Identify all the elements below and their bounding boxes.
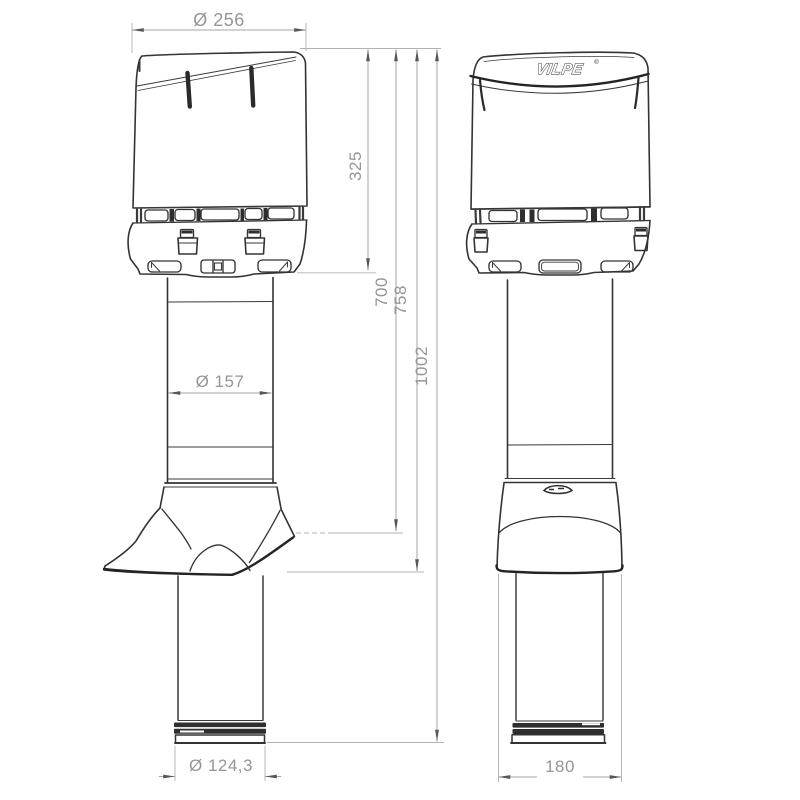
flashing-arch [499, 517, 621, 534]
slot-divider [170, 209, 175, 222]
upper-pipe-front [508, 279, 613, 478]
opening-mark [152, 263, 160, 272]
opening-inner-line [542, 262, 579, 271]
vent-slot [538, 209, 587, 221]
clip-body [178, 238, 198, 254]
vent-slot-band-front [471, 207, 650, 225]
dim-cap-diameter: Ø 256 [132, 10, 306, 53]
roof-flashing-front [497, 479, 623, 574]
slot-divider [530, 210, 535, 223]
cap-lid-front-edge-inner [138, 61, 296, 91]
front-view: VILPE ® [467, 52, 650, 743]
opening-mark [493, 263, 501, 272]
gasket-ring [174, 723, 266, 728]
slot-divider [197, 209, 201, 222]
flashing-brand-mark [544, 486, 572, 494]
lower-pipe-front [511, 573, 606, 743]
slot-divider [241, 209, 245, 221]
pipe-seam-1 [168, 302, 274, 303]
gasket-ring-step [180, 731, 204, 733]
vent-slot-band [133, 206, 307, 223]
flashing-side-right [616, 483, 622, 569]
base-opening-right [258, 260, 291, 272]
slot-divider [520, 210, 525, 223]
flashing-side-left [497, 483, 504, 569]
opening-mark [622, 263, 630, 272]
roof-flashing [104, 483, 295, 575]
opening-mark [280, 262, 288, 271]
dim-height-to-roofline: 700 [296, 50, 403, 534]
cap-crease-left [480, 80, 485, 110]
roof-vent-dimension-drawing: VILPE ® [0, 0, 800, 800]
flashing-center-dome [190, 545, 250, 571]
vent-slot [145, 210, 168, 221]
vent-slot [175, 210, 195, 221]
slot-band-edge-hatch-left [476, 210, 481, 223]
technical-drawing-page: VILPE ® [0, 0, 800, 800]
collar-side-left [160, 487, 164, 508]
dim-700-label: 700 [372, 277, 391, 307]
dim-pipe-diameter: Ø 157 [169, 372, 272, 393]
pipe-seam [508, 445, 613, 446]
cap-crease-right [635, 78, 639, 108]
side-view [104, 52, 307, 743]
vent-base [128, 221, 306, 277]
cap-lid-front-edge [137, 57, 296, 86]
base-opening-left [489, 261, 521, 272]
slot-divider [591, 209, 597, 222]
clip-latch-bar [249, 231, 260, 234]
base-clip-left [474, 230, 488, 253]
cap-lid-slot-right [251, 68, 253, 106]
vent-slot [245, 209, 262, 220]
dim-bottom-pipe-diameter: Ø 124,3 [159, 746, 281, 781]
slot-divider [264, 208, 268, 220]
base-clip-left [178, 230, 198, 255]
clip-latch-bar [182, 231, 193, 234]
brand-logo: VILPE [535, 61, 585, 78]
cap-lid-slot-left [188, 73, 190, 107]
clip-latch-bar [476, 231, 486, 234]
slot-band-edge-hatch-right [300, 207, 304, 220]
dim-758-label: 758 [391, 285, 410, 315]
base-opening-middle [539, 260, 581, 273]
base-opening-middle [201, 260, 235, 273]
base-outline [467, 221, 650, 276]
base-clip-right [245, 230, 265, 255]
dim-flashing-bottom-height: 758 [287, 50, 424, 573]
dim-cap-assembly-height: 325 [297, 50, 376, 273]
flashing-outline [104, 508, 295, 575]
lower-pipe [174, 576, 266, 743]
collar-side-right [277, 487, 281, 509]
end-flange [512, 735, 605, 743]
flashing-facet-left [162, 509, 191, 549]
clip-latch-bar [636, 229, 646, 232]
registered-mark: ® [594, 58, 599, 66]
vent-slot [268, 208, 294, 219]
opening-outline [489, 261, 521, 272]
dim-cap-diameter-label: Ø 256 [193, 10, 245, 30]
opening-outline [601, 261, 633, 272]
dimensions: Ø 256 325 700 758 1002 [132, 10, 622, 782]
opening-inner-cell [215, 263, 222, 270]
vent-slot [489, 211, 517, 222]
vent-base-front [467, 221, 650, 276]
opening-outline [148, 261, 181, 272]
base-outline [128, 221, 306, 277]
slot-band-edge-hatch-right [640, 207, 644, 220]
dim-157-label: Ø 157 [196, 372, 245, 391]
vent-cap-front: VILPE ® [471, 52, 651, 209]
end-flange [176, 735, 265, 743]
base-opening-right [601, 261, 633, 272]
gasket-ring-notch [582, 723, 600, 725]
base-opening-left [148, 261, 181, 272]
clip-body [474, 238, 488, 252]
dim-325-label: 325 [346, 151, 365, 181]
vent-slot [601, 208, 628, 219]
dim-180-label: 180 [545, 757, 575, 776]
opening-outline [258, 260, 291, 272]
vent-slot [201, 209, 239, 220]
vent-cap [133, 52, 307, 208]
dim-1002-label: 1002 [412, 346, 431, 386]
flashing-bottom-edge [497, 566, 623, 574]
gasket-ring [513, 729, 605, 734]
cap-outline [133, 52, 307, 208]
opening-outline [201, 260, 235, 273]
clip-body [245, 238, 265, 254]
slot-band-edge-hatch-left [137, 210, 141, 223]
dim-124-label: Ø 124,3 [189, 756, 253, 775]
flashing-facet-right [250, 511, 281, 563]
